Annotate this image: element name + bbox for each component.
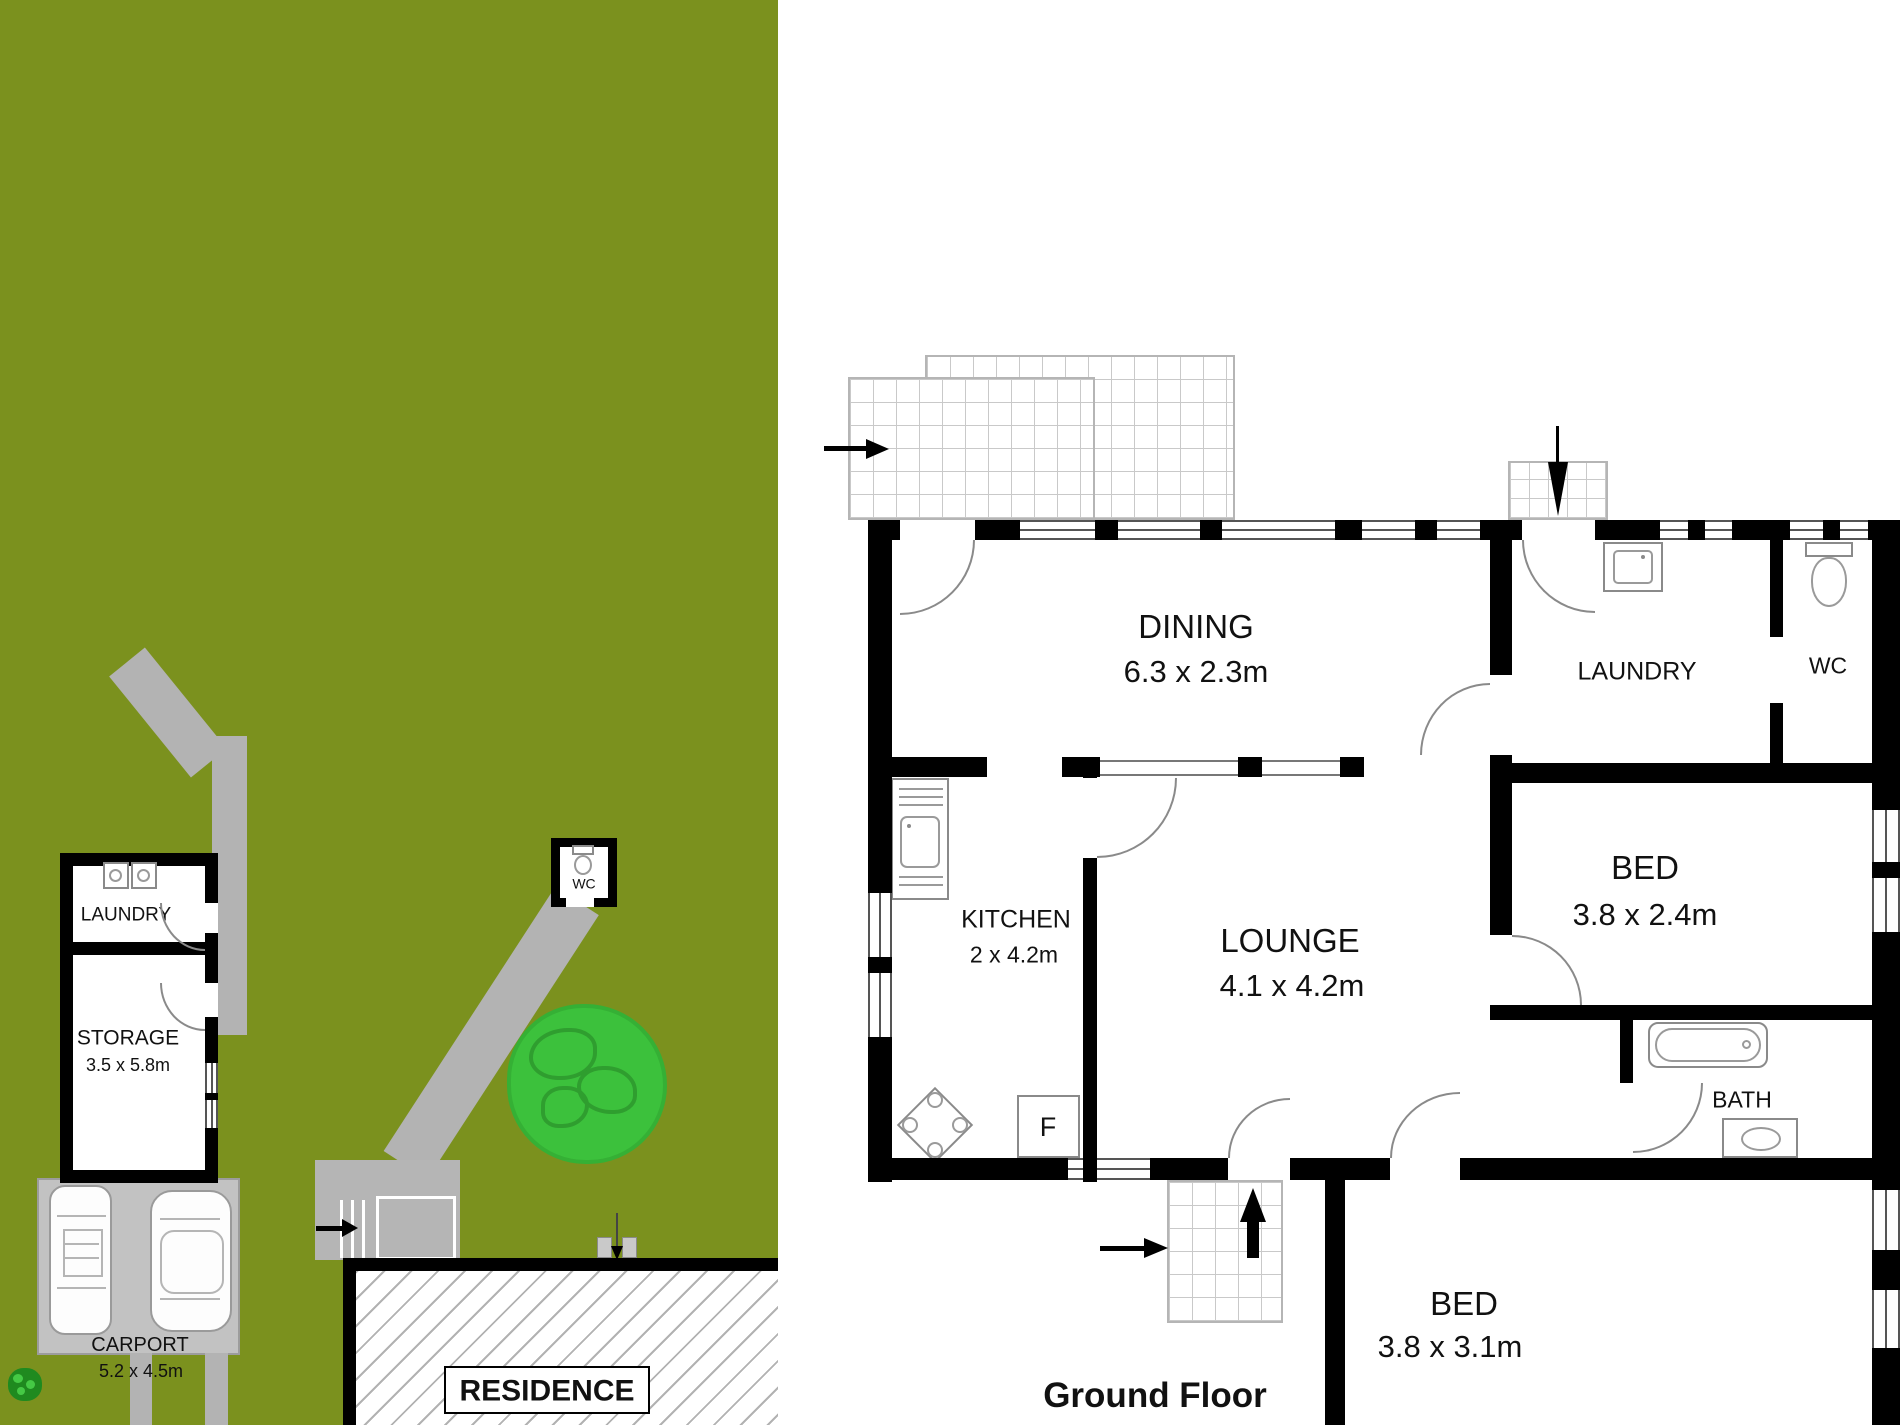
- floor-title: Ground Floor: [1043, 1377, 1267, 1416]
- wc-toilet-bowl: [1811, 557, 1847, 607]
- kitchen-door-gap: [1083, 778, 1097, 858]
- wc-hut-toilet-icon: [572, 845, 594, 855]
- wall-divider-seg-3: [1340, 757, 1364, 777]
- wall-dining-kitchen-stub: [892, 757, 987, 777]
- kitchen-door-arc: [1097, 778, 1177, 858]
- bed2-label: BED: [1430, 1286, 1498, 1322]
- laundry-label: LAUNDRY: [1577, 658, 1696, 686]
- residence-deck-rail: [376, 1196, 456, 1260]
- bath-door-arc: [1633, 1083, 1703, 1153]
- bed2-door-gap: [1390, 1158, 1460, 1180]
- window-top-8: [1790, 520, 1823, 540]
- gate-post-left: [597, 1237, 612, 1258]
- window-top-3: [1222, 520, 1335, 540]
- rear-door-gap: [900, 520, 975, 540]
- site-storage-dims: 3.5 x 5.8m: [86, 1056, 170, 1076]
- stairs-down-arrow-icon: [1548, 462, 1568, 516]
- dining-label: DINING: [1138, 609, 1254, 645]
- rear-entry-arrow-stem: [824, 446, 866, 451]
- wall-laundry-bottom: [1512, 763, 1900, 783]
- storage-window-1: [205, 1063, 218, 1093]
- laundry-tub-icon-2: [131, 862, 157, 889]
- porch-up-arrow-stem: [1247, 1222, 1259, 1258]
- porch-door-arc: [1228, 1098, 1290, 1158]
- window-top-5: [1437, 520, 1480, 540]
- site-storage-door-gap: [205, 983, 218, 1017]
- site-entry-arrow-head: [342, 1219, 358, 1237]
- front-entry-arrow-stem: [1100, 1246, 1144, 1251]
- bath-label: BATH: [1712, 1087, 1772, 1112]
- residence-label: RESIDENCE: [459, 1375, 634, 1408]
- front-entry-arrow-icon: [1144, 1238, 1168, 1258]
- fridge-label: F: [1040, 1113, 1057, 1143]
- gate-arrow-icon: [611, 1246, 623, 1260]
- window-top-1: [1020, 520, 1095, 540]
- window-left-2: [868, 973, 892, 1037]
- lounge-dims: 4.1 x 4.2m: [1220, 969, 1365, 1003]
- carport-dims: 5.2 x 4.5m: [99, 1362, 183, 1382]
- window-right-4: [1872, 1290, 1900, 1348]
- car-1: [49, 1185, 112, 1335]
- bed2-dims: 3.8 x 3.1m: [1378, 1330, 1523, 1364]
- porch-step-3: [362, 1200, 365, 1258]
- kitchen-sink-unit: [891, 778, 949, 900]
- bathtub: [1648, 1022, 1768, 1068]
- porch-door-gap: [1228, 1158, 1290, 1180]
- wall-central-vertical-top: [1490, 540, 1512, 675]
- stairs-down-arrow-stem: [1556, 426, 1559, 462]
- window-right-2: [1872, 878, 1900, 932]
- rear-entry-arrow-icon: [866, 439, 889, 459]
- wall-bath-left: [1620, 1020, 1633, 1083]
- laundry-sink: [1603, 542, 1663, 592]
- site-entry-arrow-icon: [316, 1226, 342, 1231]
- halfwall-1: [1100, 760, 1238, 776]
- window-bottom-1: [1068, 1158, 1150, 1180]
- window-top-4: [1362, 520, 1415, 540]
- dining-dims: 6.3 x 2.3m: [1124, 655, 1269, 689]
- window-right-1: [1872, 810, 1900, 862]
- rear-door-arc: [900, 540, 975, 615]
- bath-sink: [1722, 1118, 1798, 1158]
- site-storage-label: STORAGE: [77, 1026, 179, 1049]
- laundry-entry-door-arc: [1522, 540, 1595, 613]
- floorplan-image: CARPORT 5.2 x 4.5m LAUNDRY STORAGE 3.5 x…: [0, 0, 1900, 1425]
- car-2: [150, 1190, 232, 1332]
- window-right-3: [1872, 1190, 1900, 1250]
- wall-bed1-bottom: [1512, 1005, 1900, 1020]
- wall-bed2-left: [1325, 1158, 1345, 1425]
- bed1-dims: 3.8 x 2.4m: [1573, 898, 1718, 932]
- bed1-door-arc: [1512, 935, 1582, 1005]
- stove-icon: [895, 1085, 975, 1165]
- window-top-7: [1705, 520, 1732, 540]
- driveway-strip-right: [205, 1353, 228, 1425]
- window-top-9: [1840, 520, 1868, 540]
- lounge-label: LOUNGE: [1220, 923, 1359, 959]
- bed2-door-arc: [1390, 1092, 1460, 1158]
- window-top-2: [1118, 520, 1200, 540]
- gate-post-right: [622, 1237, 637, 1258]
- wall-central-vertical-mid: [1490, 755, 1512, 935]
- wall-laundry-wc-bottom: [1770, 703, 1783, 763]
- porch-up-arrow-icon: [1240, 1188, 1266, 1222]
- wc-label: WC: [1809, 653, 1847, 678]
- wall-divider-seg-2: [1238, 757, 1262, 777]
- wc-hut-door-gap: [566, 898, 594, 907]
- laundry-door-gap: [1522, 520, 1595, 540]
- wall-laundry-wc-top: [1770, 540, 1783, 637]
- dining-door-arc: [1420, 683, 1490, 755]
- wall-central-vertical-bot: [1490, 1005, 1512, 1020]
- wall-left: [868, 520, 892, 1182]
- storage-window-2: [205, 1100, 218, 1128]
- wc-hut-toilet-bowl: [574, 855, 592, 875]
- halfwall-2: [1262, 760, 1340, 776]
- window-top-6: [1660, 520, 1688, 540]
- kitchen-label: KITCHEN: [961, 906, 1071, 934]
- kitchen-dims: 2 x 4.2m: [970, 942, 1058, 967]
- carport-label: CARPORT: [91, 1334, 188, 1356]
- window-left-1: [868, 893, 892, 957]
- site-laundry-label: LAUNDRY: [81, 906, 171, 927]
- site-laundry-door-gap: [205, 903, 218, 933]
- wc-toilet-tank: [1805, 542, 1853, 557]
- bush-icon: [8, 1368, 42, 1401]
- wc-hut-label: WC: [572, 876, 595, 891]
- wall-bottom: [868, 1158, 1900, 1180]
- tree-icon: [511, 1008, 663, 1160]
- laundry-tub-icon: [103, 862, 129, 889]
- bed1-label: BED: [1611, 850, 1679, 886]
